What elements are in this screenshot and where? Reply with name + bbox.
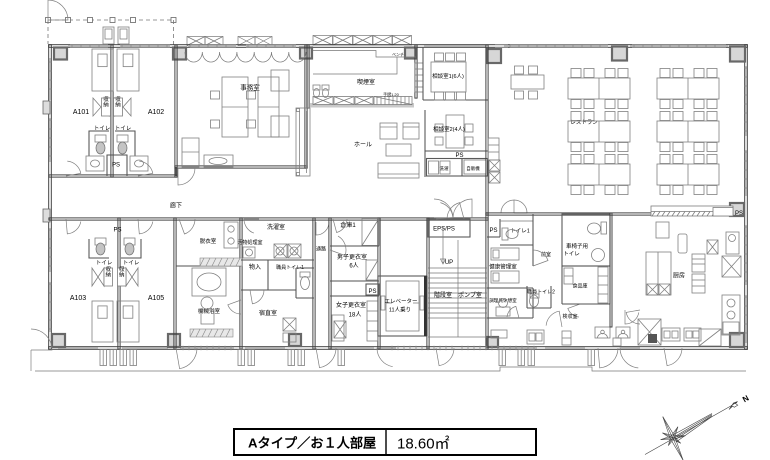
svg-text:脱衣室: 脱衣室 — [200, 237, 217, 245]
svg-text:6人: 6人 — [349, 263, 358, 270]
svg-text:階段室: 階段室 — [434, 291, 452, 299]
svg-text:倉庫1: 倉庫1 — [340, 221, 356, 229]
svg-text:健康管理室: 健康管理室 — [489, 263, 517, 271]
svg-text:事務室: 事務室 — [240, 83, 260, 92]
svg-text:収納: 収納 — [103, 96, 109, 109]
svg-text:検収室: 検収室 — [562, 313, 577, 320]
svg-text:収納: 収納 — [119, 266, 125, 279]
svg-text:PS: PS — [112, 163, 120, 169]
svg-text:トイレ: トイレ — [96, 261, 113, 267]
svg-text:洗濯: 洗濯 — [440, 165, 449, 172]
svg-text:厨房: 厨房 — [673, 272, 685, 280]
svg-text:A105: A105 — [148, 295, 164, 302]
svg-text:A102: A102 — [148, 109, 164, 116]
svg-text:トイレ: トイレ — [115, 126, 132, 132]
svg-text:18人: 18人 — [349, 312, 362, 319]
svg-text:PS: PS — [113, 228, 121, 234]
svg-text:トイレ: トイレ — [563, 252, 580, 258]
svg-text:通路: 通路 — [316, 246, 326, 253]
svg-text:自販機: 自販機 — [466, 165, 480, 172]
svg-text:収納: 収納 — [105, 266, 111, 279]
svg-text:A101: A101 — [73, 109, 89, 116]
svg-text:収納: 収納 — [115, 96, 121, 109]
svg-text:喫煙室: 喫煙室 — [357, 78, 375, 86]
svg-text:宿直室: 宿直室 — [259, 309, 277, 317]
svg-text:相談室2(4人): 相談室2(4人) — [433, 125, 465, 133]
svg-text:11人乗り: 11人乗り — [389, 307, 411, 314]
svg-text:PS: PS — [489, 228, 497, 234]
svg-text:PS: PS — [368, 289, 376, 295]
svg-text:PS: PS — [735, 211, 743, 217]
svg-text:調理員休憩室: 調理員休憩室 — [489, 297, 517, 304]
svg-text:汚物処理室: 汚物処理室 — [237, 239, 262, 246]
svg-text:エレベーター: エレベーター — [384, 297, 417, 305]
svg-text:洗濯室: 洗濯室 — [267, 223, 285, 231]
svg-text:相談室1(6人): 相談室1(6人) — [432, 72, 464, 80]
svg-text:物入: 物入 — [249, 263, 261, 271]
svg-text:手摺1.20: 手摺1.20 — [383, 91, 400, 97]
svg-text:UP: UP — [445, 260, 453, 266]
svg-text:廊下: 廊下 — [170, 202, 182, 210]
svg-text:ポンプ室: ポンプ室 — [458, 291, 482, 299]
svg-text:女子更衣室: 女子更衣室 — [336, 301, 366, 309]
svg-text:トイレ: トイレ — [123, 261, 140, 267]
svg-text:Aタイプ／お１人部屋: Aタイプ／お１人部屋 — [248, 435, 376, 451]
svg-text:ホール: ホール — [354, 142, 372, 149]
svg-text:食品庫: 食品庫 — [572, 283, 587, 290]
svg-text:トイレ: トイレ — [94, 126, 111, 132]
svg-text:ベンチ: ベンチ — [392, 52, 404, 57]
svg-text:18.60㎡: 18.60㎡ — [397, 436, 450, 453]
svg-text:EPS/PS: EPS/PS — [433, 227, 455, 233]
svg-text:車椅子用: 車椅子用 — [566, 242, 588, 250]
svg-text:A103: A103 — [70, 295, 86, 302]
